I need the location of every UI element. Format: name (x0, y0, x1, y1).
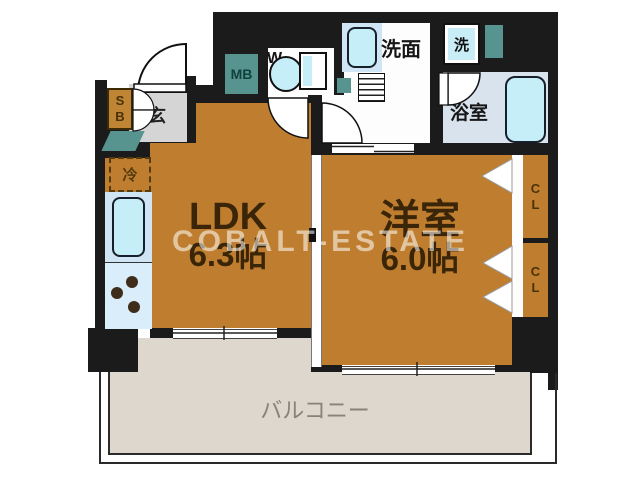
closet-door-front (512, 155, 523, 317)
meter-box-label: MB (231, 66, 253, 82)
vanity-basin (347, 27, 377, 68)
balcony-outer-border (555, 373, 557, 464)
balcony-border (108, 453, 532, 455)
washroom-label: 洗面 (381, 33, 421, 62)
wall-segment (430, 60, 443, 147)
wall-segment (186, 76, 196, 143)
washroom-name: 洗面 (381, 39, 421, 61)
washing-machine-label: 洗 (454, 34, 469, 55)
wall-segment (95, 80, 107, 126)
kitchen-sink (112, 197, 145, 257)
shoe-box: SB (107, 88, 133, 130)
western-balcony-window (342, 366, 495, 375)
closet-bottom-label: CL (528, 264, 543, 296)
kitchen-stove (105, 262, 152, 329)
wall-segment (277, 328, 311, 338)
entrance-name: 玄 (148, 106, 166, 126)
shoe-box-label: SB (113, 93, 128, 125)
meter-box: MB (225, 54, 258, 94)
bathroom-label: 浴室 (450, 98, 488, 125)
balcony-outer-border (99, 372, 101, 464)
ldk-balcony-window (173, 329, 277, 339)
floor-washroom (322, 95, 344, 143)
bathroom-name: 浴室 (450, 103, 488, 124)
entrance-label: 玄 (148, 102, 166, 128)
duct-space (485, 25, 503, 58)
floorplan-canvas: MB SB 冷 洗 CL CL (0, 0, 640, 480)
closet-top-label: CL (528, 181, 543, 213)
refrigerator-label: 冷 (122, 164, 137, 185)
wall-segment (88, 328, 138, 372)
floor-ldk (196, 103, 311, 143)
wall-segment (150, 328, 173, 338)
linen-shelf (358, 73, 385, 102)
refrigerator-space: 冷 (109, 157, 151, 192)
sliding-partition (311, 155, 322, 367)
balcony-outer-border (99, 462, 557, 464)
balcony-border (108, 372, 110, 455)
wall-segment (95, 158, 105, 330)
wc-label: WC (266, 50, 282, 86)
balcony-name: バルコニー (260, 398, 370, 423)
bathtub (505, 76, 546, 143)
floor-balcony (138, 338, 311, 372)
washing-machine-space: 洗 (443, 23, 480, 65)
watermark: COBALT-ESTATE (172, 225, 469, 259)
wall-segment (311, 97, 322, 147)
balcony-label: バルコニー (240, 393, 390, 425)
closet-bottom: CL (523, 243, 548, 317)
closet-top: CL (523, 155, 548, 238)
wall-segment (512, 317, 558, 373)
pipe-space (337, 78, 351, 93)
wc-name: WC (266, 50, 283, 86)
washroom-sliding-door (332, 144, 414, 153)
balcony-border (530, 373, 532, 455)
